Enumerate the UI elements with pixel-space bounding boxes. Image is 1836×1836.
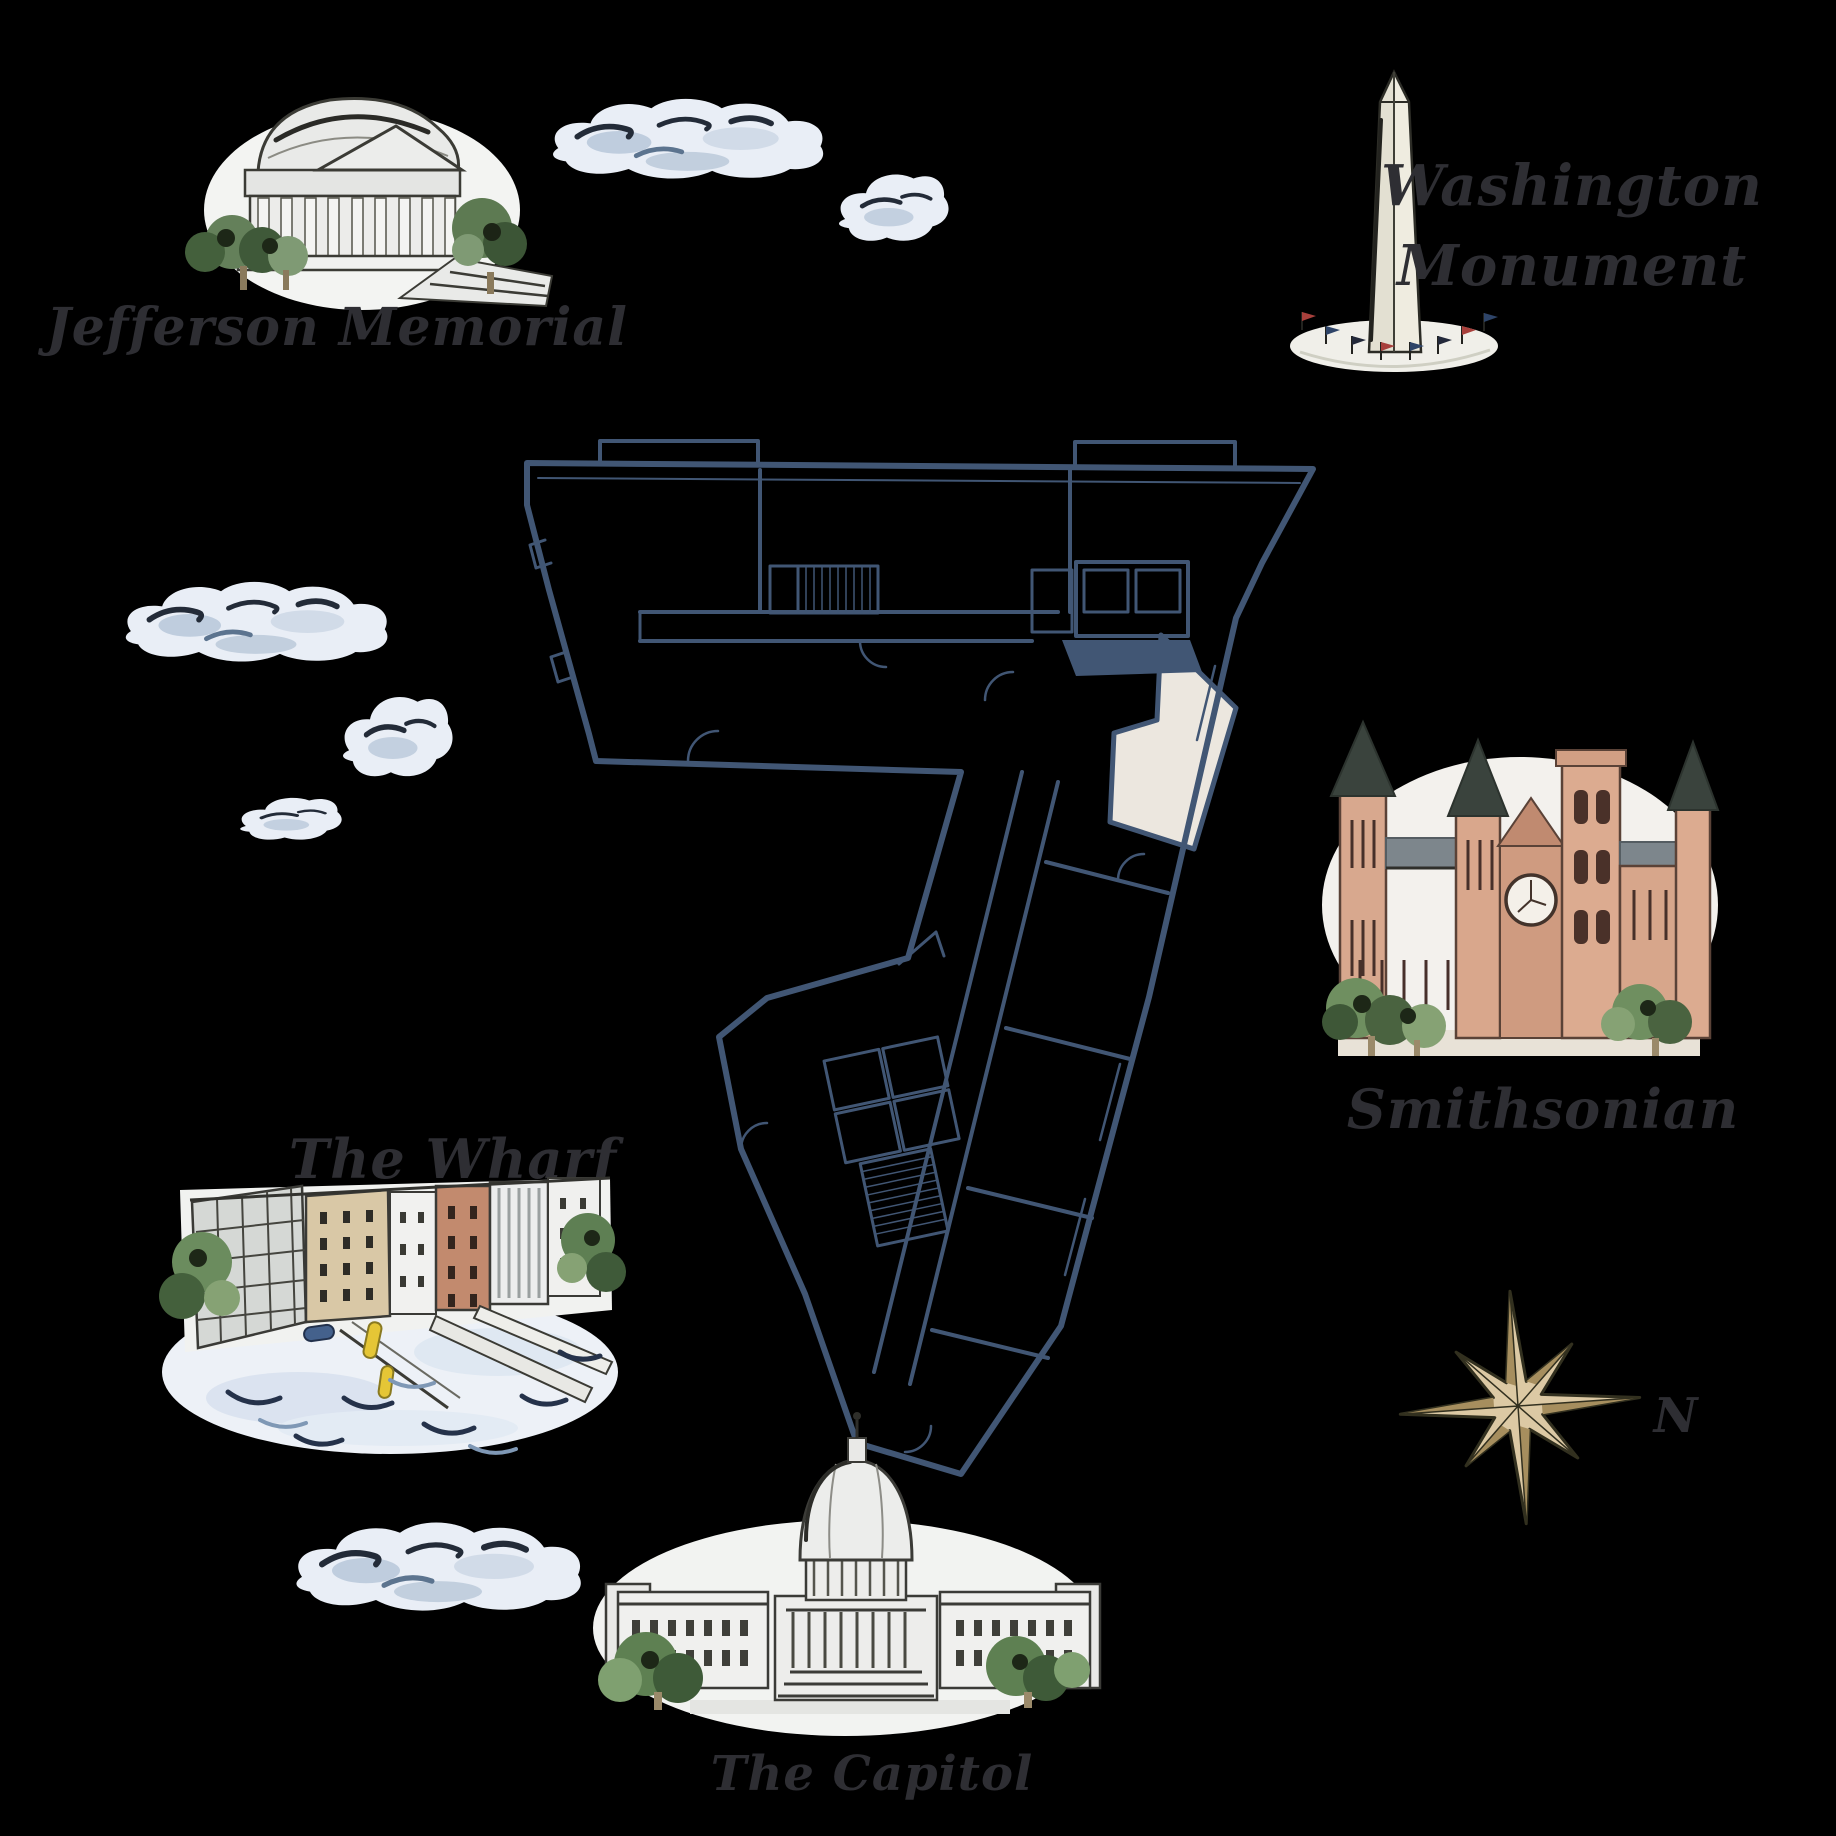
washington-monument-label-line2: Monument [1395, 233, 1747, 299]
elevator-cab [1084, 570, 1128, 612]
cloud-icon [240, 798, 341, 840]
door-arc [688, 731, 718, 761]
cloud-icon [126, 582, 388, 662]
parapet [600, 441, 758, 463]
capitol-label: The Capitol [711, 1746, 1033, 1802]
door-arc [741, 1123, 767, 1149]
cloud-icon [553, 99, 823, 179]
door-arc [1118, 854, 1144, 880]
compass-north-label: N [1652, 1388, 1700, 1444]
castle-clock-section [1498, 798, 1564, 1038]
smithsonian-illustration [1322, 722, 1718, 1056]
cloud-icon [296, 1523, 580, 1611]
elevator-core [1032, 562, 1202, 676]
castle-campanile [1556, 750, 1626, 1038]
floor-plan-outer-wall [527, 463, 1313, 1474]
corridor-wall [874, 772, 1022, 1372]
castle-right-turret [1668, 742, 1718, 1038]
door-arc [905, 1426, 931, 1452]
dc-illustrated-map: Jefferson Memorial Washington Monument [0, 0, 1836, 1836]
capitol-illustration [593, 1412, 1100, 1736]
floor-plan [527, 441, 1313, 1474]
cloud-icon [343, 697, 453, 776]
door-arc [985, 672, 1013, 700]
lower-core [824, 1037, 977, 1249]
jefferson-memorial-illustration [185, 99, 552, 310]
wharf-illustration [159, 1178, 626, 1454]
elevator-cab [1136, 570, 1180, 612]
smithsonian-label: Smithsonian [1347, 1077, 1739, 1141]
parapet [1075, 442, 1235, 468]
jefferson-memorial-label: Jefferson Memorial [37, 297, 628, 358]
cloud-icon [839, 175, 949, 241]
stair-shaft [770, 566, 878, 613]
compass-rose-icon [1392, 1283, 1648, 1532]
door-arc [860, 641, 886, 667]
capitol-dome [800, 1412, 912, 1600]
washington-monument-illustration [1290, 72, 1498, 372]
washington-monument-label-line1: Washington [1381, 153, 1763, 219]
